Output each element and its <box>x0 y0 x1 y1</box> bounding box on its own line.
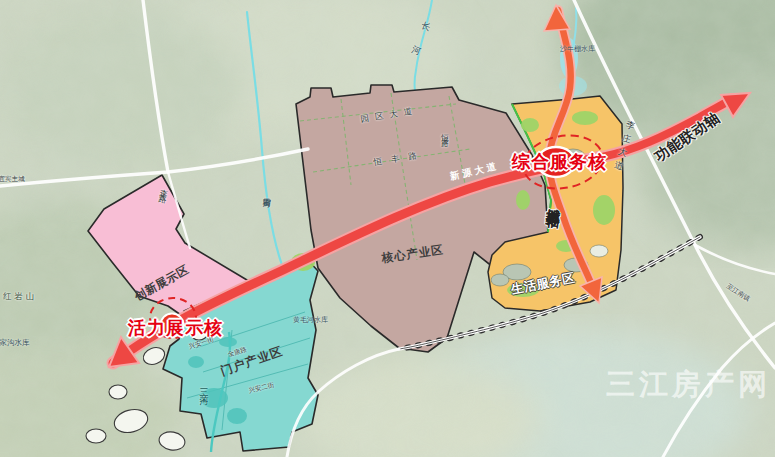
hengsheng-road-label: 恒盛路 <box>441 127 449 136</box>
vitality-display-core-label: 活力展示核 <box>128 319 223 337</box>
comprehensive-service-core-label: 综合服务核 <box>512 153 607 171</box>
sanwen-river-label: 三文河 <box>199 381 208 393</box>
to-yibin-city-label: 至宜宾主城 <box>0 176 25 183</box>
huangmaohe-reservoir-label: 黄毛河水库 <box>293 317 328 324</box>
watermark: 三江房产网 <box>606 370 771 399</box>
hongyan-mountain-label: 红 岩 山 <box>3 292 34 301</box>
shaniupeng-reservoir-label: 沙牛棚水库 <box>560 46 595 53</box>
jiangjiagou-reservoir-label: 蒋家沟水库 <box>0 339 30 347</box>
lichang-road-label: 李长路 <box>159 182 169 192</box>
planning-map: 创新展示区 核心产业区 门户产业区 生活服务区 综合服务核 活力展示核 功能联动… <box>0 0 775 457</box>
